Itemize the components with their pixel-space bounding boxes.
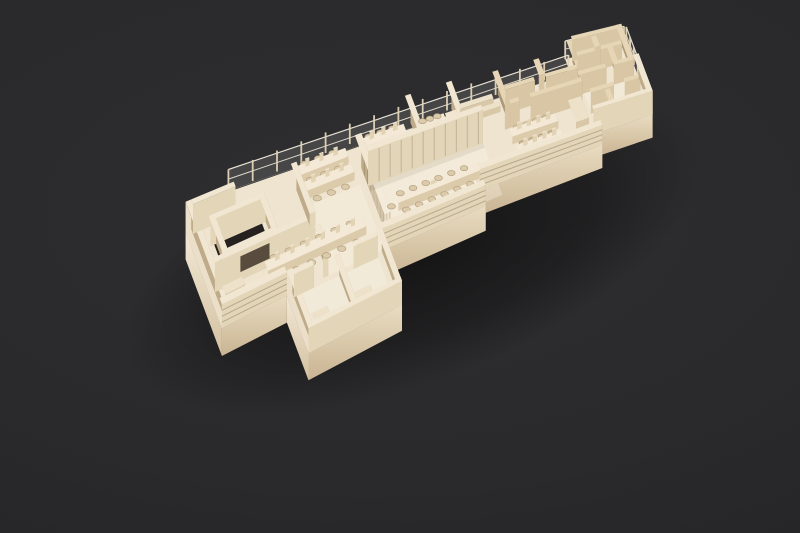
desk-cluster-chair (327, 190, 335, 196)
partition-wall (595, 46, 601, 67)
desk-row-chair (322, 253, 330, 259)
chair (396, 191, 404, 196)
chair (387, 204, 395, 209)
chair (434, 114, 442, 119)
desk-row-chair (338, 246, 346, 252)
chair (460, 166, 468, 171)
desk-cluster-monitor (393, 123, 397, 131)
chair (409, 185, 417, 190)
chair (448, 170, 456, 175)
chair (435, 175, 443, 180)
office-model-render (0, 0, 800, 533)
chair (419, 119, 427, 124)
desk-cluster-chair (341, 184, 349, 190)
partition-wall (310, 212, 316, 243)
desk-cluster-chair (313, 195, 321, 201)
model-canvas (0, 0, 800, 533)
chair (426, 116, 434, 121)
chair (422, 180, 430, 185)
office-floor-model (81, 21, 744, 482)
